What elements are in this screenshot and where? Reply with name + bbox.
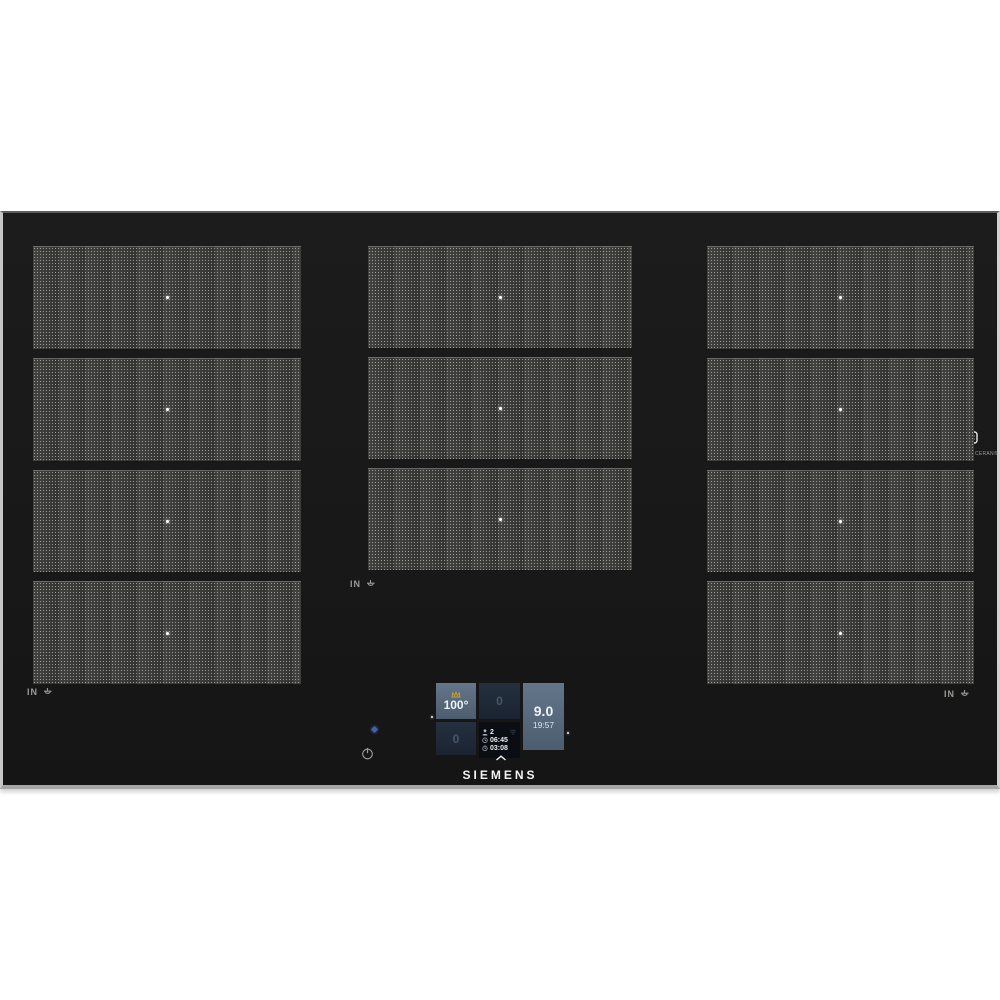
display-tile-zone-top[interactable]: 0: [479, 683, 520, 719]
pan-icon: [959, 689, 971, 699]
cooking-zone-segment: [33, 246, 301, 350]
induction-mark-right: IN: [944, 689, 971, 699]
power-level-value: 9.0: [534, 704, 553, 718]
crown-icon: [451, 691, 461, 698]
cooking-zone-center: [368, 246, 632, 571]
info-row-timer: 03:08: [482, 745, 517, 752]
induction-label: IN: [944, 689, 955, 699]
power-level-value: 0: [453, 732, 460, 746]
cooking-zone-segment: [707, 470, 974, 574]
cooking-zone-segment: [707, 358, 974, 462]
profile-count: 2: [490, 729, 494, 736]
pan-icon: [42, 687, 54, 697]
alarm-clock-icon: [482, 737, 488, 743]
timer-time: 03:08: [490, 745, 508, 752]
induction-mark-left: IN: [27, 687, 54, 697]
cooking-zone-segment: [368, 246, 632, 349]
alarm-time: 06:45: [490, 737, 508, 744]
display-tile-power[interactable]: 9.0 19:57: [523, 683, 564, 750]
display-tile-zone-bottom[interactable]: 0: [436, 722, 476, 755]
power-icon[interactable]: [361, 747, 374, 760]
product-photo: SCHOTT CERAN® IN IN IN: [0, 0, 1000, 1000]
cooking-zone-segment: [33, 581, 301, 685]
pan-icon: [365, 579, 377, 589]
cooking-zone-segment: [707, 581, 974, 685]
wifi-icon: [509, 729, 517, 735]
user-icon: [482, 729, 488, 736]
indicator-dot: [567, 732, 569, 734]
cooking-zone-left: [33, 246, 301, 685]
cooking-zone-right: [707, 246, 974, 685]
cooking-zone-segment: [707, 246, 974, 350]
display-tile-info[interactable]: 2 06:45 03:08: [479, 722, 520, 758]
brand-logo: SIEMENS: [0, 768, 1000, 782]
cooking-zone-segment: [368, 357, 632, 460]
induction-label: IN: [350, 579, 361, 589]
caret-up-icon[interactable]: [495, 755, 507, 761]
cooking-zone-segment: [368, 468, 632, 571]
temperature-value: 100°: [444, 699, 469, 711]
cooking-zone-segment: [33, 358, 301, 462]
induction-mark-center: IN: [350, 579, 377, 589]
countdown-time: 19:57: [533, 720, 554, 730]
info-row-alarm: 06:45: [482, 737, 517, 744]
info-row-profile: 2: [482, 729, 517, 736]
timer-icon: [482, 745, 488, 751]
induction-label: IN: [27, 687, 38, 697]
indicator-dot: [431, 716, 433, 718]
display-tile-temperature[interactable]: 100°: [436, 683, 476, 719]
cooking-zone-segment: [33, 470, 301, 574]
power-level-value: 0: [496, 694, 503, 708]
